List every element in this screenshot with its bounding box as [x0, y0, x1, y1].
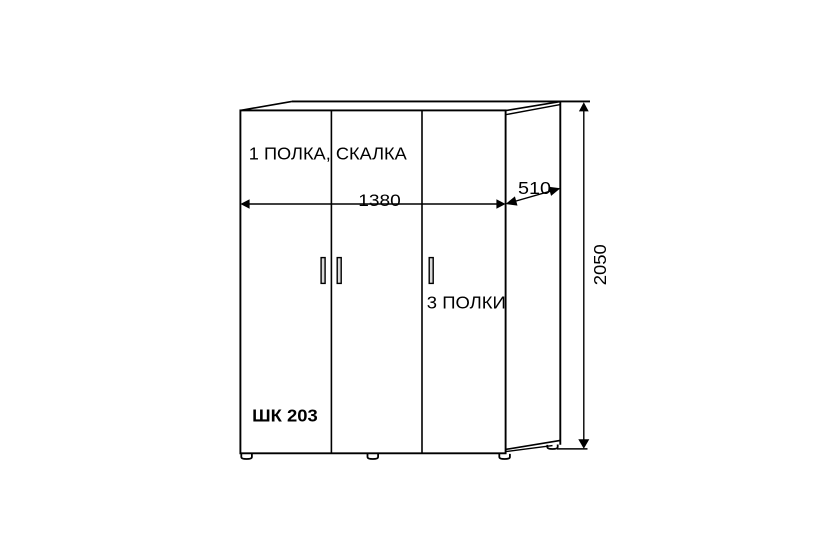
svg-text:ШК 203: ШК 203: [252, 405, 318, 425]
svg-text:1380: 1380: [358, 191, 401, 210]
svg-text:1 ПОЛКА, СКАЛКА: 1 ПОЛКА, СКАЛКА: [249, 144, 407, 164]
svg-text:2050: 2050: [590, 244, 610, 285]
svg-text:510: 510: [518, 178, 551, 198]
svg-text:3 ПОЛКИ: 3 ПОЛКИ: [427, 293, 506, 313]
